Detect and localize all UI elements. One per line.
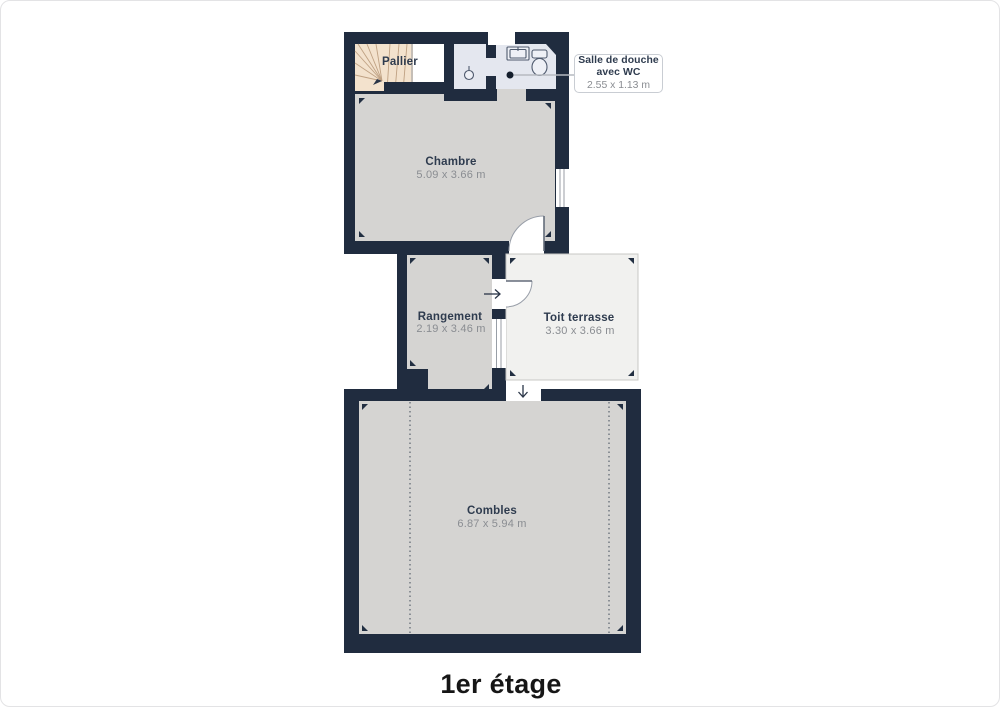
shower-stall-wall-bottom xyxy=(486,76,496,89)
terrace-label: Toit terrasse xyxy=(544,312,615,324)
sink-icon xyxy=(507,47,529,60)
terrace-dimensions: 3.30 x 3.66 m xyxy=(545,325,614,337)
floor-title: 1er étage xyxy=(1,669,1000,700)
chambre-label: Chambre xyxy=(425,156,476,168)
toilet-icon xyxy=(532,50,547,76)
callout-dimensions: 2.55 x 1.13 m xyxy=(587,80,650,92)
wall-landing-shower xyxy=(444,44,454,89)
shower-room-callout: Salle de douche avec WC 2.55 x 1.13 m xyxy=(574,54,663,93)
callout-anchor-dot xyxy=(507,72,514,79)
wall-under-shower-right xyxy=(526,89,556,101)
window xyxy=(556,169,569,207)
floor-plan-drawing xyxy=(1,1,1000,707)
pallier-label: Pallier xyxy=(382,56,418,68)
callout-name-line1: Salle de douche xyxy=(578,55,659,67)
shower-stall-wall-top xyxy=(486,44,496,58)
top-block xyxy=(344,28,569,254)
combles-label: Combles xyxy=(467,505,517,517)
shower-door-opening xyxy=(497,89,526,95)
wall-under-shower-left xyxy=(444,89,497,101)
rangement-label: Rangement xyxy=(418,311,482,323)
floor-plan-canvas: Pallier Chambre 5.09 x 3.66 m Rangement … xyxy=(0,0,1000,707)
combles-dimensions: 6.87 x 5.94 m xyxy=(457,518,526,530)
window xyxy=(492,319,506,368)
chambre-dimensions: 5.09 x 3.66 m xyxy=(416,169,485,181)
top-wall-opening xyxy=(488,28,515,45)
callout-name-line2: avec WC xyxy=(596,67,640,79)
rangement-dimensions: 2.19 x 3.46 m xyxy=(416,323,485,335)
wall-under-pallier xyxy=(384,82,454,94)
